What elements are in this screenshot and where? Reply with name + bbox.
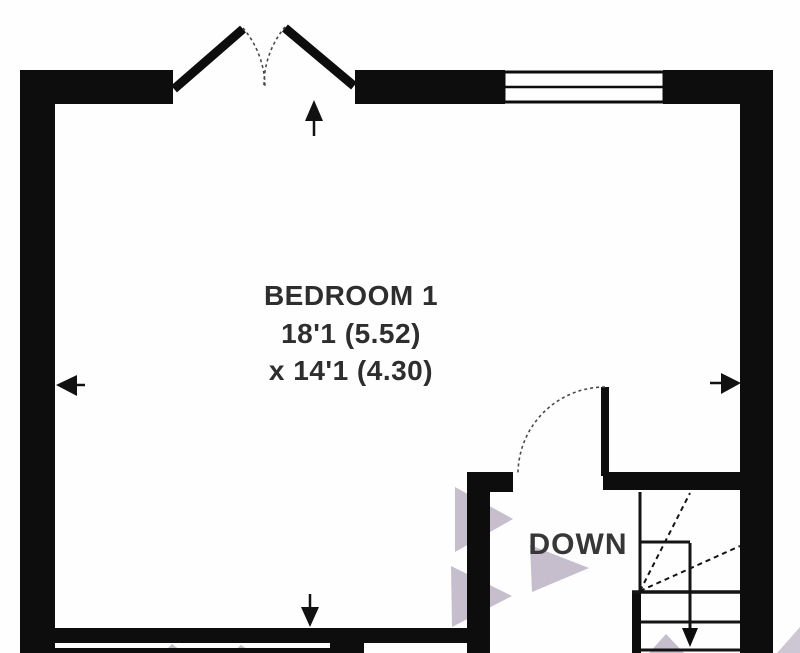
dim-arrow-down-head	[301, 607, 319, 627]
room-label: BEDROOM 1	[264, 280, 438, 311]
wall-door-jamb-left	[467, 472, 513, 492]
wall-bottom	[20, 628, 468, 643]
wall-stair-stub	[632, 592, 641, 653]
wall-left	[20, 100, 55, 653]
double-door-left-swing-arc	[243, 28, 265, 88]
wall-top-left	[20, 70, 173, 104]
hall-door	[518, 387, 605, 476]
floor-plan-canvas: BEDROOM 1 18'1 (5.52) x 14'1 (4.30) DOWN	[0, 0, 800, 653]
stairs-down-label: DOWN	[529, 528, 628, 561]
wall-below-stub	[330, 639, 364, 653]
corner-fragment	[777, 627, 800, 653]
wall-interior-horizontal	[603, 472, 740, 490]
double-door-left-leaf	[174, 29, 243, 89]
wall-interior-vertical	[467, 490, 490, 653]
dim-arrow-up-head	[305, 100, 323, 121]
room-dimension-line2: x 14'1 (4.30)	[269, 355, 433, 386]
dim-arrow-left-head	[56, 375, 77, 396]
staircase	[632, 492, 740, 650]
wall-top-mid	[355, 70, 505, 104]
double-door	[174, 27, 354, 89]
wall-below-line	[53, 648, 330, 653]
double-door-right-swing-arc	[264, 27, 285, 86]
stair-down-arrow-head	[682, 628, 698, 647]
room-dimension-line1: 18'1 (5.52)	[281, 318, 421, 349]
double-door-right-leaf	[285, 28, 354, 86]
dim-arrow-right-head	[721, 373, 741, 394]
room-labels: BEDROOM 1 18'1 (5.52) x 14'1 (4.30)	[264, 280, 438, 386]
hall-door-swing-arc	[518, 387, 605, 474]
wall-right	[740, 70, 773, 653]
window-symbol	[504, 72, 664, 102]
floor-plan-drawing: BEDROOM 1 18'1 (5.52) x 14'1 (4.30) DOWN	[0, 0, 800, 653]
